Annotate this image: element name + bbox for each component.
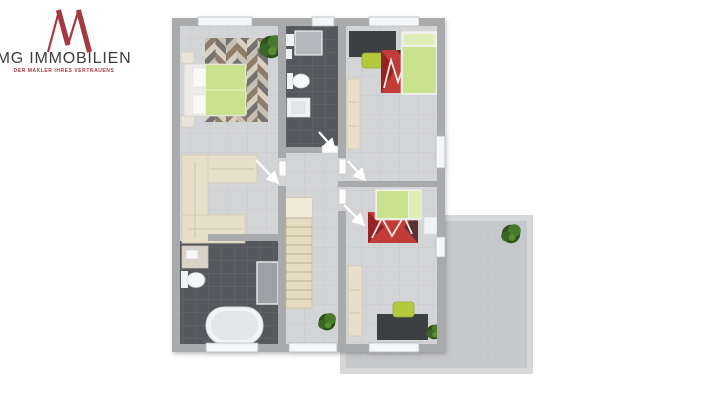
desk-chair bbox=[393, 302, 414, 317]
logo-company-name: MG IMMOBILIEN bbox=[0, 50, 131, 67]
double-bed bbox=[184, 64, 246, 116]
wardrobe bbox=[348, 266, 362, 336]
shower bbox=[257, 262, 278, 304]
building bbox=[172, 17, 445, 352]
window bbox=[289, 343, 337, 352]
door-leaf bbox=[322, 146, 338, 153]
wall-closet-bath bbox=[208, 234, 278, 241]
floorplan-image: MG IMMOBILIEN DER MAKLER IHRES VERTRAUEN… bbox=[0, 0, 711, 400]
wc-shower bbox=[295, 31, 322, 55]
nightstand bbox=[181, 52, 194, 63]
window bbox=[369, 343, 419, 352]
window bbox=[198, 17, 252, 26]
single-bed bbox=[401, 31, 438, 95]
logo-monogram-m-icon bbox=[48, 10, 90, 52]
wall-closet-hall bbox=[278, 186, 286, 344]
wall-bedroom-wc bbox=[278, 26, 286, 158]
door-leaf bbox=[339, 189, 346, 204]
wc-shelf bbox=[285, 49, 292, 59]
logo-tagline: DER MAKLER IHRES VERTRAUENS bbox=[14, 68, 115, 74]
dresser bbox=[424, 217, 437, 234]
wall-hall-kids2 bbox=[338, 211, 346, 344]
wc-toilet bbox=[287, 73, 310, 89]
wall-wc-kids1 bbox=[338, 26, 346, 158]
bathtub bbox=[206, 307, 263, 344]
door-leaf bbox=[279, 161, 286, 176]
window bbox=[436, 136, 445, 168]
wc-sink bbox=[287, 98, 310, 117]
wall-wc-bottom bbox=[286, 147, 322, 153]
wall-left bbox=[172, 18, 180, 352]
window bbox=[436, 237, 445, 257]
desk bbox=[377, 314, 428, 340]
single-bed bbox=[375, 189, 422, 220]
wall-kids1-kids2 bbox=[338, 181, 437, 187]
page: MG IMMOBILIEN DER MAKLER IHRES VERTRAUEN… bbox=[0, 0, 711, 400]
window bbox=[312, 17, 334, 26]
wc-shelf bbox=[285, 34, 294, 46]
desk-chair bbox=[362, 53, 383, 68]
staircase bbox=[286, 198, 312, 308]
window bbox=[369, 17, 419, 26]
vanity-sink bbox=[186, 250, 198, 259]
wall-right bbox=[437, 18, 445, 352]
nightstand bbox=[181, 116, 194, 127]
wardrobe bbox=[347, 79, 360, 149]
door-leaf bbox=[339, 159, 346, 174]
logo: MG IMMOBILIEN DER MAKLER IHRES VERTRAUEN… bbox=[0, 10, 131, 74]
window bbox=[206, 343, 258, 352]
